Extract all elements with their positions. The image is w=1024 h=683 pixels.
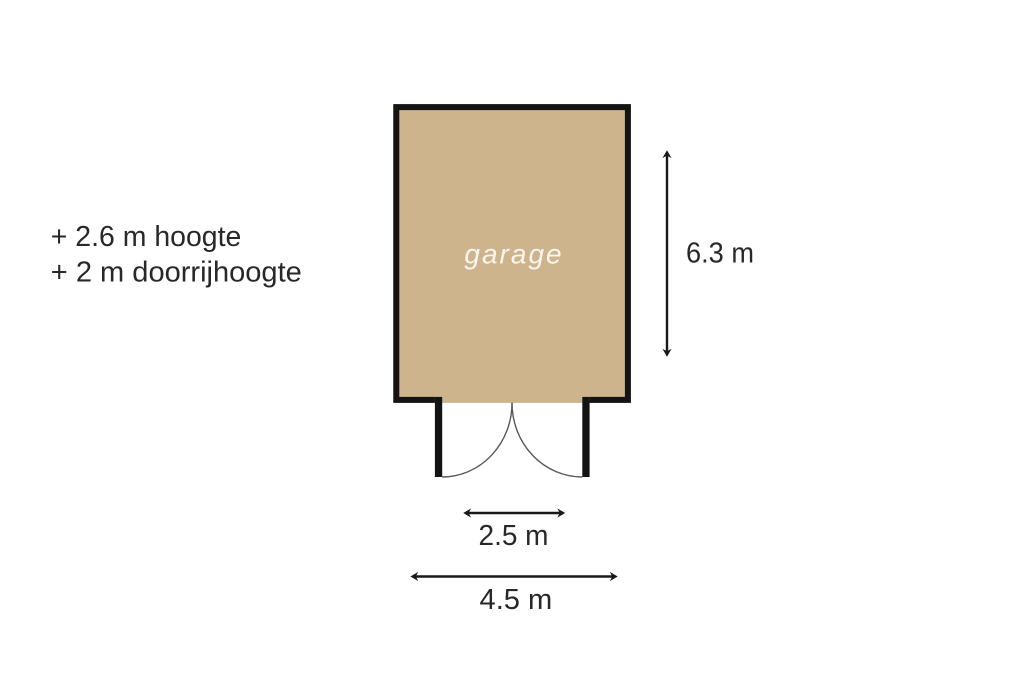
- svg-text:6.3 m: 6.3 m: [686, 238, 754, 270]
- svg-text:2.5 m: 2.5 m: [479, 520, 549, 552]
- svg-text:garage: garage: [464, 238, 563, 269]
- svg-text:+ 2 m doorrijhoogte: + 2 m doorrijhoogte: [51, 257, 302, 289]
- svg-text:+ 2.6 m hoogte: + 2.6 m hoogte: [51, 221, 242, 253]
- svg-text:4.5 m: 4.5 m: [480, 584, 553, 616]
